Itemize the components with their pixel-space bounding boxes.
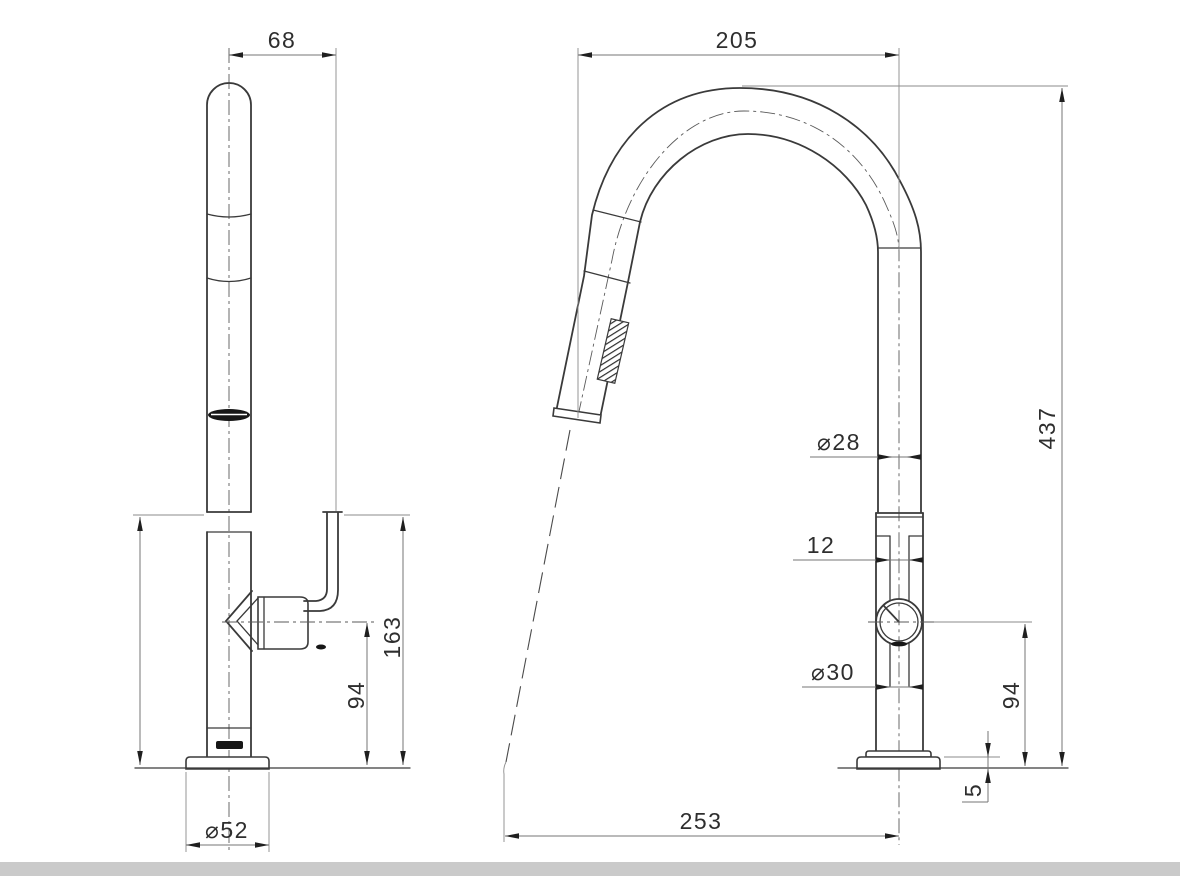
spec-sheet-page: 68 163 94 ⌀52	[0, 0, 1180, 876]
side-gooseneck-outer	[556, 88, 921, 512]
dim-label-base-diameter: ⌀52	[205, 817, 249, 843]
side-gooseneck-inner	[600, 134, 878, 512]
handle-cartridge-index	[884, 606, 899, 622]
spray-projection-line	[506, 430, 570, 762]
dim-label-spout-tube-diameter: ⌀28	[817, 429, 861, 455]
ext-253-left	[504, 762, 506, 842]
front-spout-seam-2	[207, 278, 251, 282]
front-base-flange	[186, 757, 269, 769]
brand-mark	[216, 741, 243, 749]
dim-label-spout-reach: 205	[716, 27, 759, 53]
spray-button	[597, 319, 628, 383]
dim-label-handle-centre-height-front: 94	[343, 681, 369, 710]
dim-label-overall-height: 437	[1034, 407, 1060, 450]
front-body-sides	[207, 532, 251, 757]
housing-sides	[876, 513, 923, 757]
dim-label-outlet-projection: 253	[680, 808, 723, 834]
front-lever	[304, 512, 342, 611]
front-handle-base	[258, 597, 308, 649]
spray-head-face	[553, 408, 601, 423]
housing-inner-lines	[890, 536, 909, 686]
bottom-gray-bar	[0, 862, 1180, 876]
spray-head-seam-1	[593, 210, 641, 222]
dim-label-base-plate-thickness: 5	[960, 783, 986, 797]
front-view: 68 163 94 ⌀52	[133, 27, 410, 852]
front-handle-chevron-outer	[226, 591, 252, 651]
dim-label-lever-top-height: 163	[379, 616, 405, 659]
dim-label-body-diameter: ⌀30	[811, 659, 855, 685]
side-view: 205 437 ⌀28 12 ⌀30 94 5	[504, 27, 1068, 845]
side-centerline	[578, 111, 899, 845]
dim-label-cartridge-width: 12	[807, 532, 836, 558]
side-base-flange	[857, 757, 940, 769]
side-base-tier	[866, 751, 931, 757]
dim-label-spout-offset: 68	[268, 27, 297, 53]
handle-cartridge-shadow	[891, 642, 907, 647]
technical-drawing-canvas: 68 163 94 ⌀52	[0, 0, 1180, 876]
dim-label-handle-centre-height-side: 94	[998, 681, 1024, 710]
front-handle-dot	[316, 645, 326, 650]
